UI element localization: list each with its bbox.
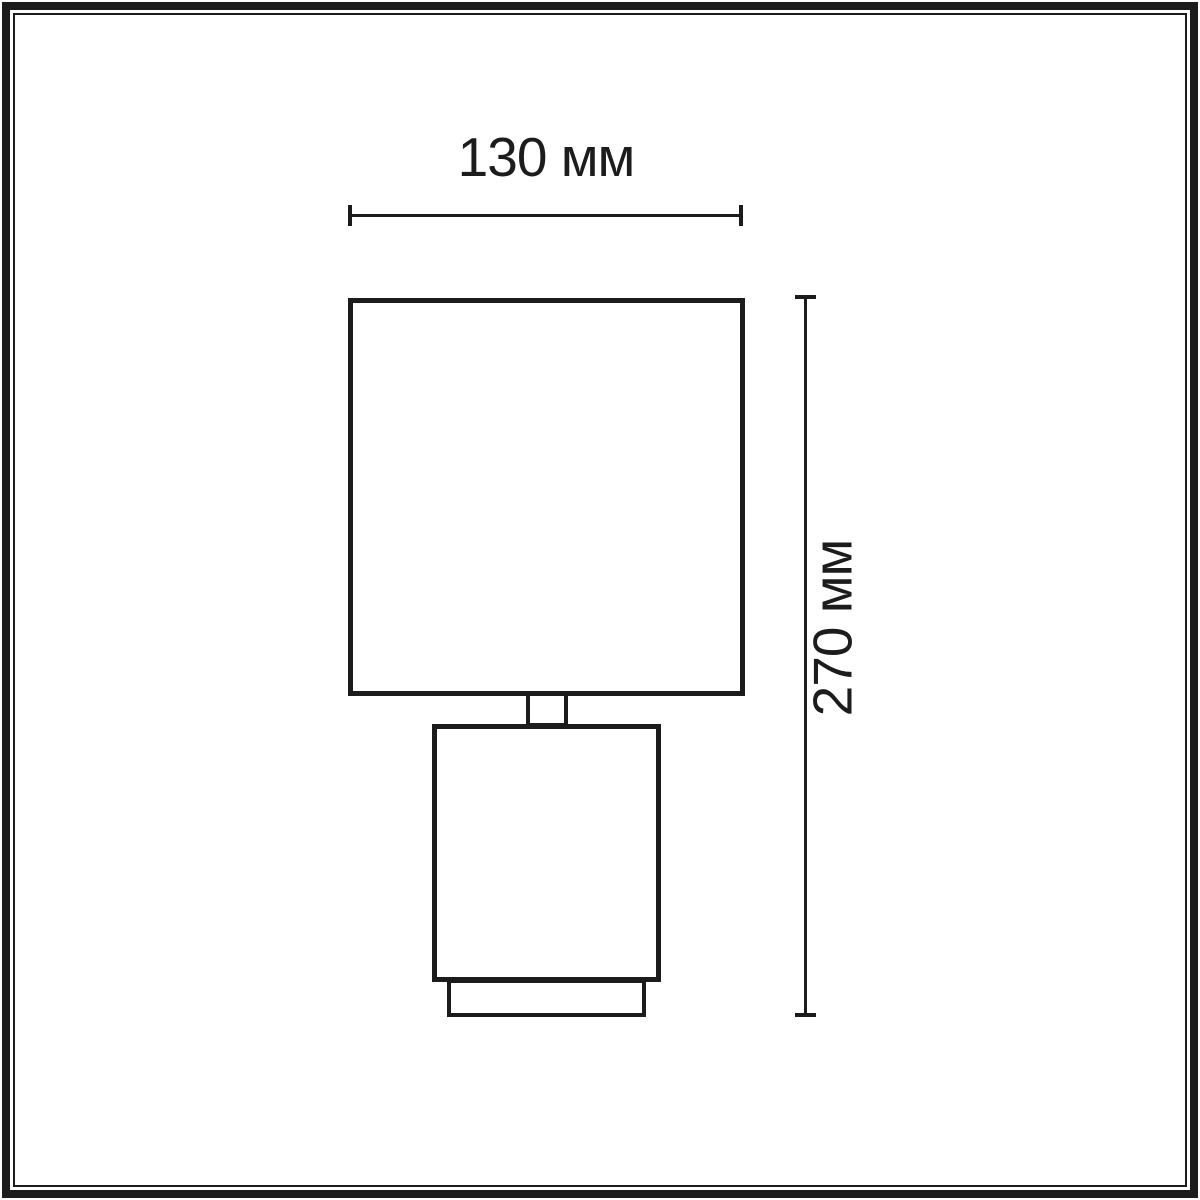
lamp-shade (348, 298, 745, 696)
dimension-drawing-canvas: 130 мм 270 мм (0, 0, 1200, 1200)
width-dimension-line (350, 214, 742, 217)
width-dimension-label: 130 мм (458, 130, 635, 185)
width-dimension-left-tick (348, 205, 352, 226)
lamp-base (447, 979, 646, 1017)
lamp-neck (526, 692, 568, 727)
lamp-body (432, 724, 661, 982)
height-dimension-label: 270 мм (806, 540, 861, 717)
height-dimension-bottom-tick (795, 1013, 816, 1017)
width-dimension-right-tick (739, 205, 743, 226)
height-dimension-top-tick (795, 295, 816, 299)
